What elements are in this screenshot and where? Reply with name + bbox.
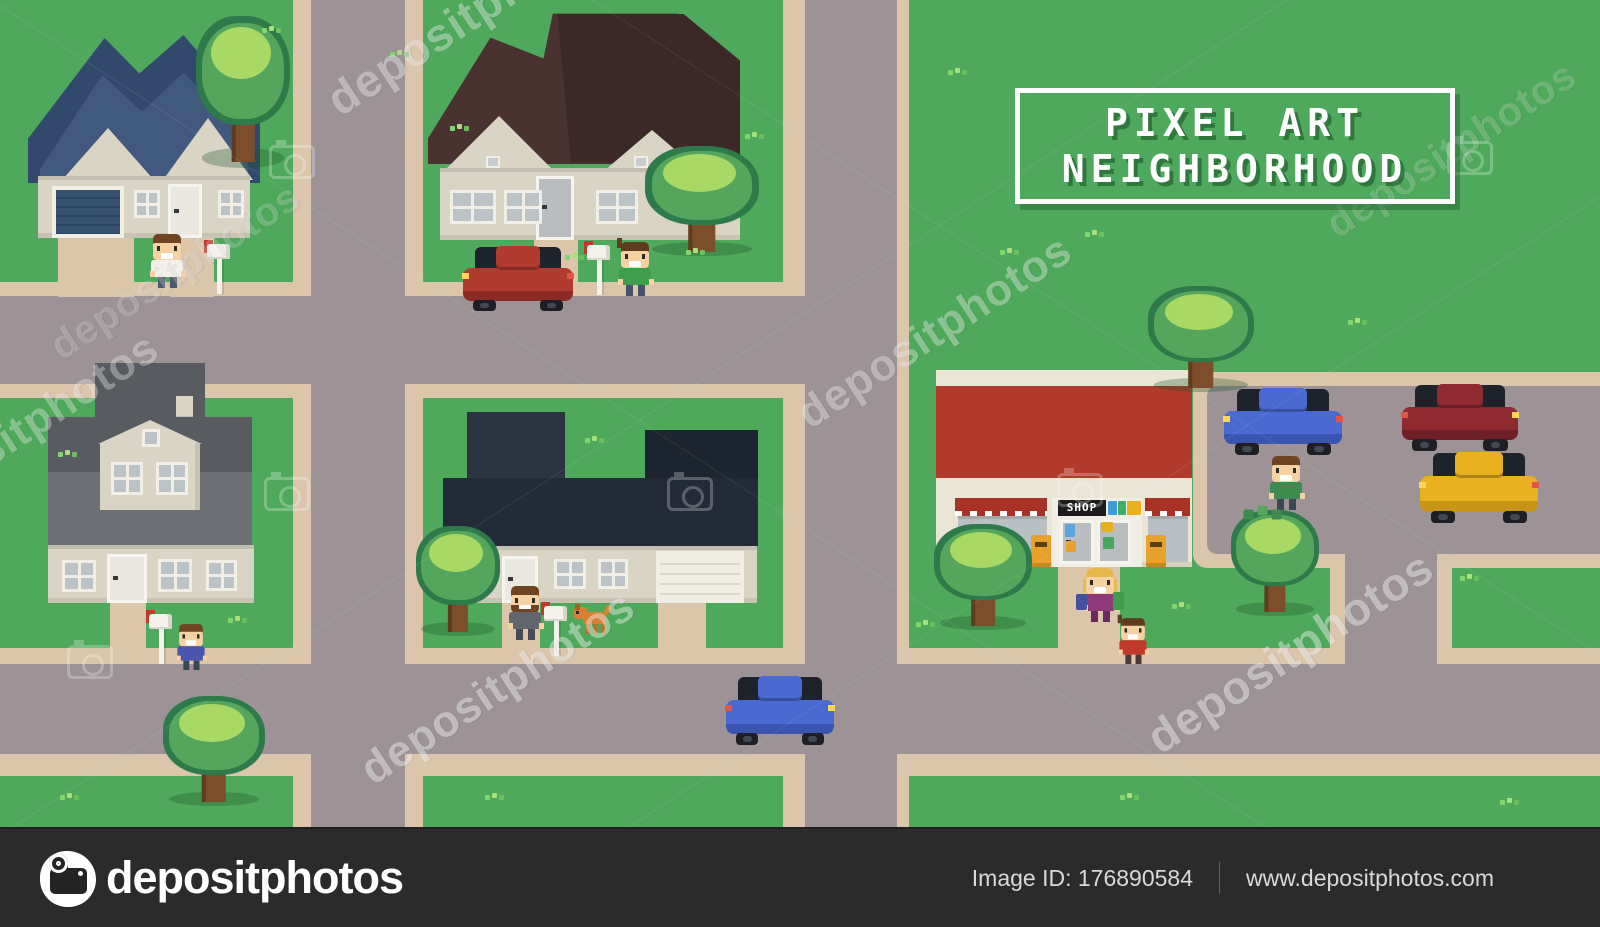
house4-window1: [554, 559, 586, 589]
grass-tuft: [745, 134, 750, 139]
yellow-car-parked: [1420, 452, 1538, 520]
mailbox: [204, 242, 232, 294]
title-plaque: PIXEL ART NEIGHBORHOOD: [1015, 88, 1455, 204]
grass-tuft: [485, 795, 490, 800]
house3-attic-window: [142, 429, 160, 447]
grass-tuft: [450, 126, 455, 131]
tree: [934, 524, 1032, 630]
house2-window1: [450, 190, 496, 224]
title-line2: NEIGHBORHOOD: [1062, 146, 1409, 192]
house3-tower-window1: [111, 462, 143, 495]
grass-tuft: [58, 452, 63, 457]
shop-bin-right: [1146, 535, 1166, 567]
shop-awning-left: [955, 498, 1047, 516]
house4-window2: [598, 559, 628, 589]
shop-poster-green: [1103, 537, 1114, 549]
driveway-house4: [658, 601, 706, 663]
shop-roof: [936, 386, 1192, 478]
house2-window3: [596, 190, 638, 224]
shop-logo-yellow: [1127, 501, 1141, 515]
grass-tuft: [390, 52, 395, 57]
shop-bin-left: [1031, 535, 1051, 567]
shop-sign: SHOP: [1058, 500, 1106, 516]
shop-poster-blue: [1065, 524, 1075, 537]
road-connector: [1345, 554, 1437, 668]
person-green-girl: [618, 242, 652, 296]
footer-meta: Image ID: 176890584 www.depositphotos.co…: [972, 829, 1494, 927]
grass-tuft: [1500, 800, 1505, 805]
brand-name: depositphotos: [106, 852, 403, 904]
house4-garage-door: [656, 551, 744, 603]
stock-image-preview: SHOP: [0, 0, 1600, 927]
house1-garage-door: [52, 186, 124, 238]
house1-door: [168, 184, 202, 238]
image-id: Image ID: 176890584: [972, 865, 1193, 892]
grass-tuft: [1172, 604, 1177, 609]
grass-bush: [1244, 510, 1254, 520]
tree: [196, 16, 290, 168]
shop-logo-green: [1118, 501, 1126, 515]
house4-roof-block-left: [467, 412, 565, 480]
grass-tuft: [262, 28, 267, 33]
watermark-footer-bar: depositphotos Image ID: 176890584 www.de…: [0, 827, 1600, 927]
shop-poster-orange: [1066, 541, 1076, 552]
house3-window3: [206, 560, 237, 591]
shop-logo-blue: [1108, 501, 1117, 515]
mailbox: [584, 243, 612, 295]
depositphotos-logo-icon: [40, 851, 96, 907]
maroon-car-parked: [1402, 384, 1518, 448]
tree: [1148, 286, 1254, 392]
dog: [574, 604, 612, 634]
shop-poster-yellow: [1101, 522, 1113, 532]
grass-tuft: [565, 255, 570, 260]
house1-window-right: [218, 190, 244, 218]
house3-window2: [158, 559, 192, 592]
house3-door: [107, 554, 147, 603]
shop-awning-right: [1145, 498, 1190, 516]
person-red-kid: [1119, 618, 1148, 664]
grass-tuft: [1348, 320, 1353, 325]
tree: [645, 146, 759, 256]
grass-tuft: [228, 618, 233, 623]
person-green-man: [1269, 456, 1303, 510]
title-line1: PIXEL ART: [1105, 100, 1365, 146]
blue-car-parked: [1224, 388, 1342, 452]
camera-lens-icon: [49, 854, 68, 873]
house2-window2: [504, 190, 542, 224]
person-shopper-woman: [1083, 568, 1117, 622]
grass-tuft: [60, 795, 65, 800]
tree: [416, 526, 500, 636]
house2-vent-left: [486, 156, 500, 168]
grass-tuft: [585, 438, 590, 443]
website-url: www.depositphotos.com: [1246, 865, 1494, 892]
shop-sign-label: SHOP: [1067, 501, 1098, 514]
shopping-bag-blue: [1076, 594, 1087, 610]
person-blue-kid: [177, 624, 206, 670]
house3-window1: [62, 560, 96, 592]
grass-tuft: [1085, 232, 1090, 237]
tree: [1231, 510, 1319, 616]
grass-tuft: [948, 70, 953, 75]
red-car: [463, 246, 573, 308]
tree: [163, 696, 265, 806]
driveway-house1: [58, 237, 134, 297]
house3-tower-window2: [156, 462, 188, 495]
divider: [1219, 862, 1220, 894]
mailbox: [541, 604, 569, 656]
house4-roof-block-right: [645, 430, 758, 479]
grass-tuft: [686, 250, 691, 255]
house1-window-left: [134, 190, 160, 218]
person-bearded-man: [508, 586, 542, 640]
person-white-shirt: [150, 234, 184, 288]
shopping-bag-green: [1113, 592, 1124, 610]
walkway-house3: [110, 601, 146, 663]
grass-tuft: [1120, 795, 1125, 800]
grass-tuft: [916, 622, 921, 627]
blue-car-driving: [726, 676, 834, 742]
mailbox: [146, 612, 174, 664]
grass-tuft: [1000, 250, 1005, 255]
grass-tuft: [1460, 576, 1465, 581]
